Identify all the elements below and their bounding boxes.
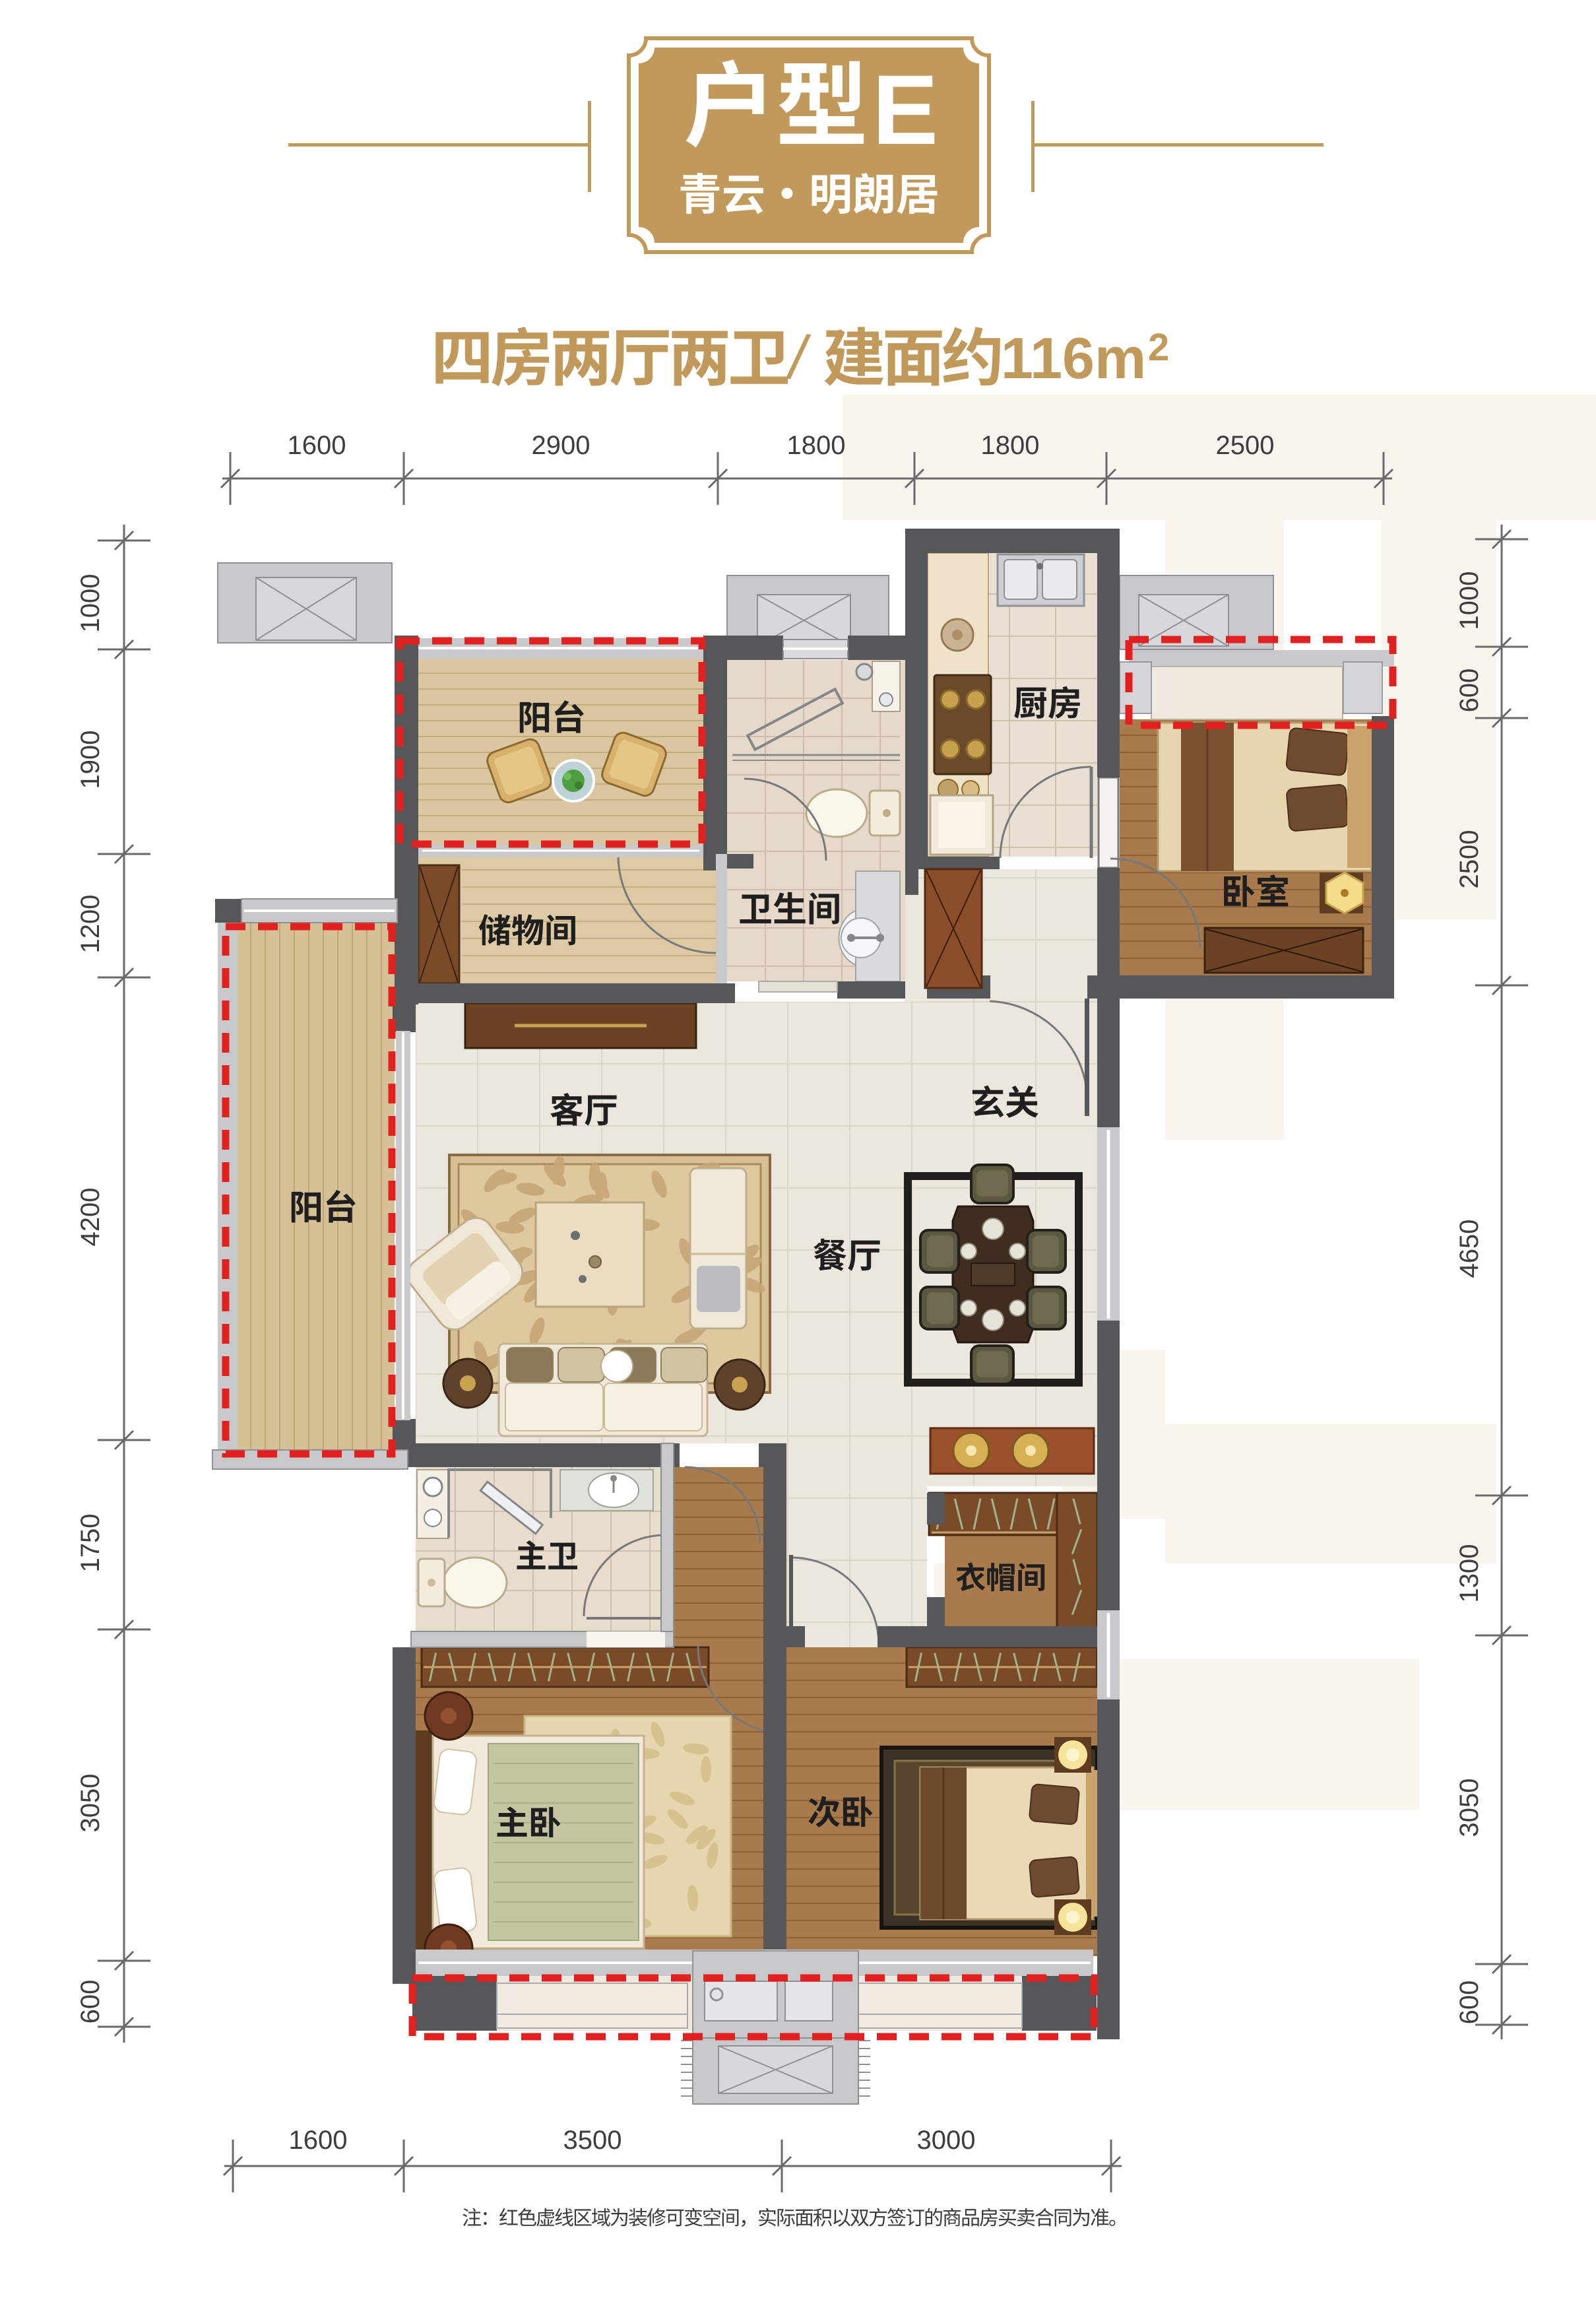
svg-text:3050: 3050 xyxy=(1455,1779,1484,1837)
svg-text:2900: 2900 xyxy=(532,431,591,460)
svg-text:2500: 2500 xyxy=(1216,431,1275,460)
svg-text:600: 600 xyxy=(1455,1981,1484,2025)
svg-text:1600: 1600 xyxy=(289,2126,348,2155)
svg-text:4200: 4200 xyxy=(76,1188,105,1247)
svg-text:3000: 3000 xyxy=(917,2126,976,2155)
svg-text:1000: 1000 xyxy=(1455,572,1484,630)
svg-text:1600: 1600 xyxy=(288,431,346,460)
svg-text:1900: 1900 xyxy=(76,731,105,789)
svg-text:1800: 1800 xyxy=(981,431,1040,460)
svg-text:116m: 116m xyxy=(1001,325,1146,391)
svg-text:1800: 1800 xyxy=(787,431,846,460)
svg-text:E: E xyxy=(872,54,938,165)
svg-text:600: 600 xyxy=(1455,669,1484,713)
svg-text:1300: 1300 xyxy=(1455,1544,1484,1603)
svg-text:2500: 2500 xyxy=(1455,830,1484,889)
svg-text:600: 600 xyxy=(76,1980,105,2024)
svg-text:1200: 1200 xyxy=(76,895,105,954)
svg-text:2: 2 xyxy=(1148,326,1169,369)
svg-text:1750: 1750 xyxy=(76,1514,105,1573)
svg-text:1000: 1000 xyxy=(76,574,105,633)
svg-text:3500: 3500 xyxy=(563,2126,622,2155)
svg-text:3050: 3050 xyxy=(76,1774,105,1833)
svg-text:4650: 4650 xyxy=(1455,1220,1484,1278)
